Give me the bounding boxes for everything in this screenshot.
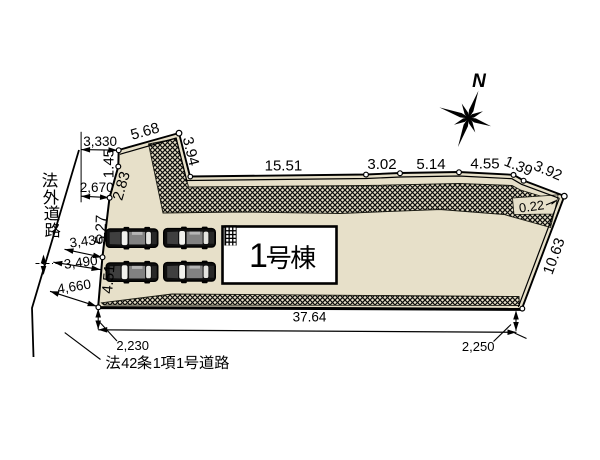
svg-text:1: 1	[249, 237, 268, 275]
svg-text:15.51: 15.51	[265, 158, 303, 175]
svg-text:2,230: 2,230	[116, 338, 149, 353]
svg-text:5.14: 5.14	[416, 156, 445, 173]
svg-text:1.45: 1.45	[101, 149, 118, 178]
svg-text:N: N	[472, 71, 487, 92]
svg-text:3.92: 3.92	[531, 157, 565, 184]
svg-text:4.51: 4.51	[99, 264, 118, 295]
svg-text:37.64: 37.64	[293, 310, 327, 325]
svg-text:1: 1	[153, 356, 161, 372]
svg-text:4,660: 4,660	[56, 277, 92, 297]
svg-text:5.27: 5.27	[92, 215, 110, 245]
svg-text:42: 42	[121, 356, 137, 372]
svg-text:1: 1	[176, 356, 184, 372]
svg-text:3.02: 3.02	[367, 156, 396, 173]
svg-text:4.55: 4.55	[470, 156, 499, 173]
svg-text:3,330: 3,330	[83, 134, 117, 149]
svg-text:2,250: 2,250	[462, 339, 495, 354]
svg-text:2,670: 2,670	[80, 180, 114, 195]
